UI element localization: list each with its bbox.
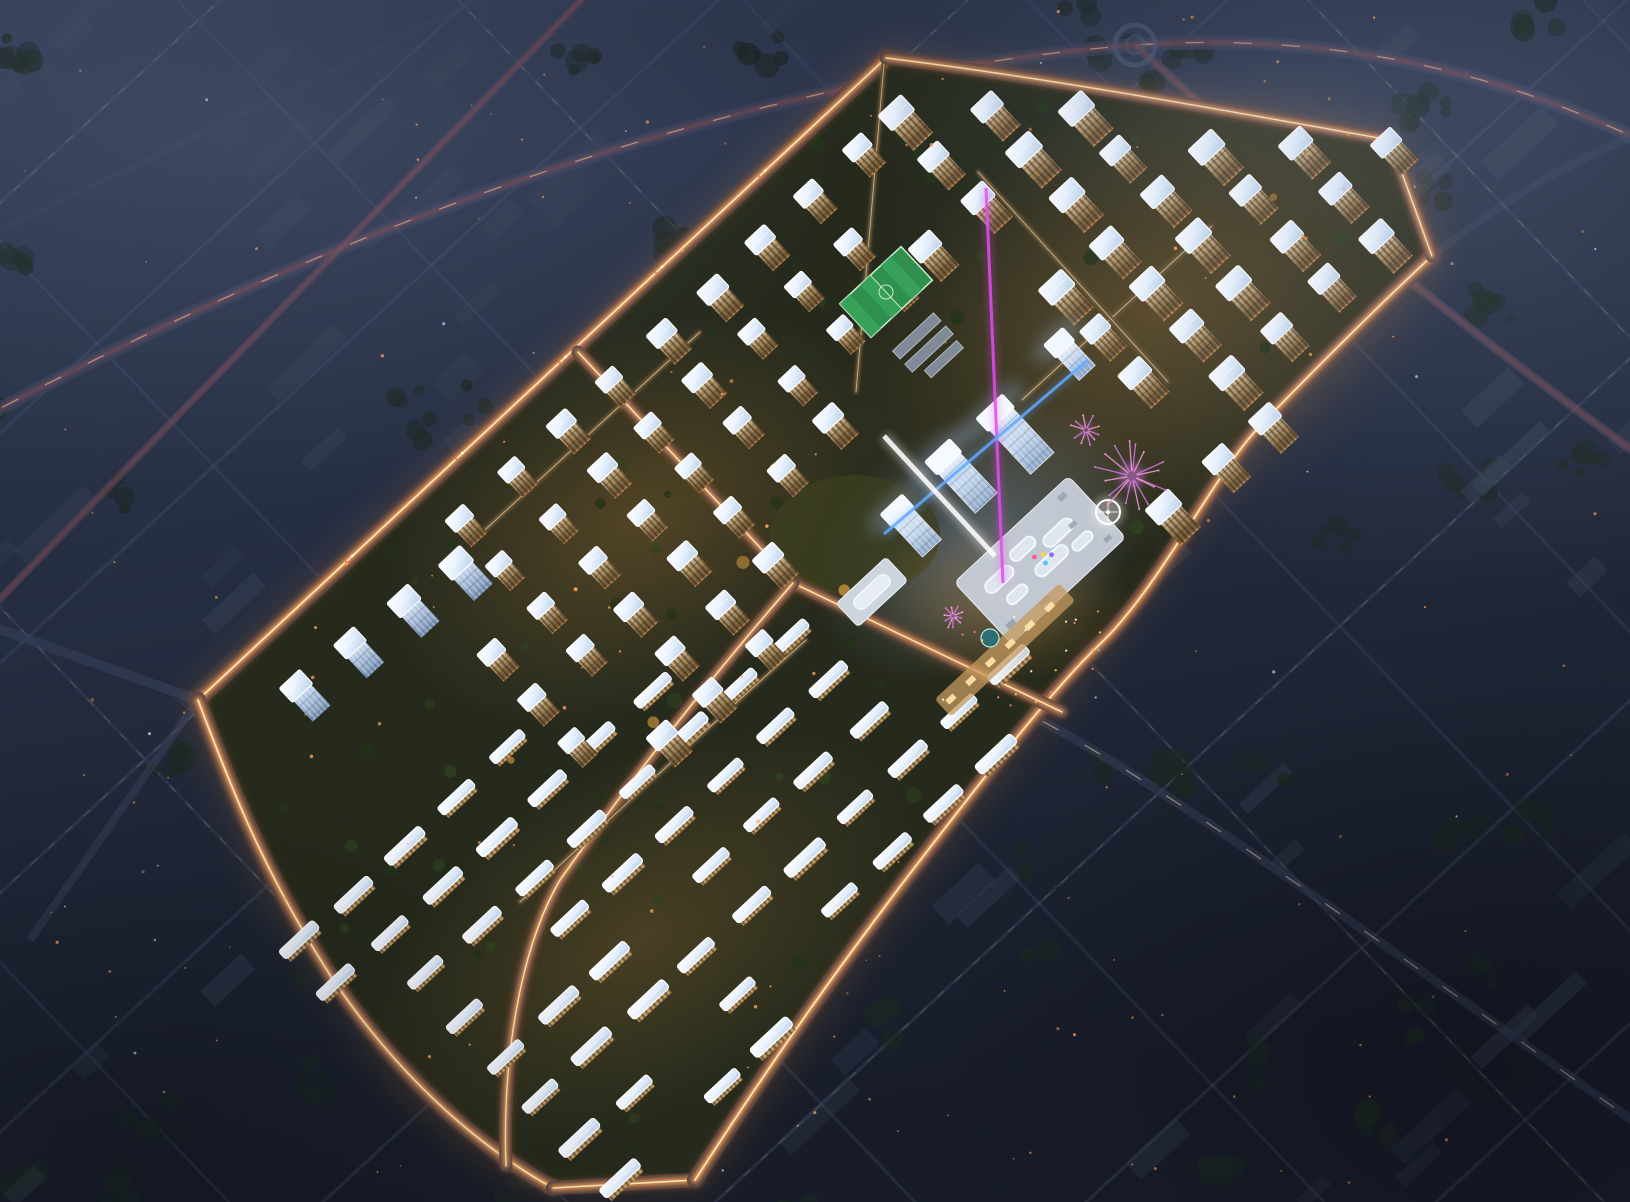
- aerial-rendering: [0, 0, 1630, 1202]
- fountain-pool: [981, 629, 999, 647]
- scene-canvas: [0, 0, 1630, 1202]
